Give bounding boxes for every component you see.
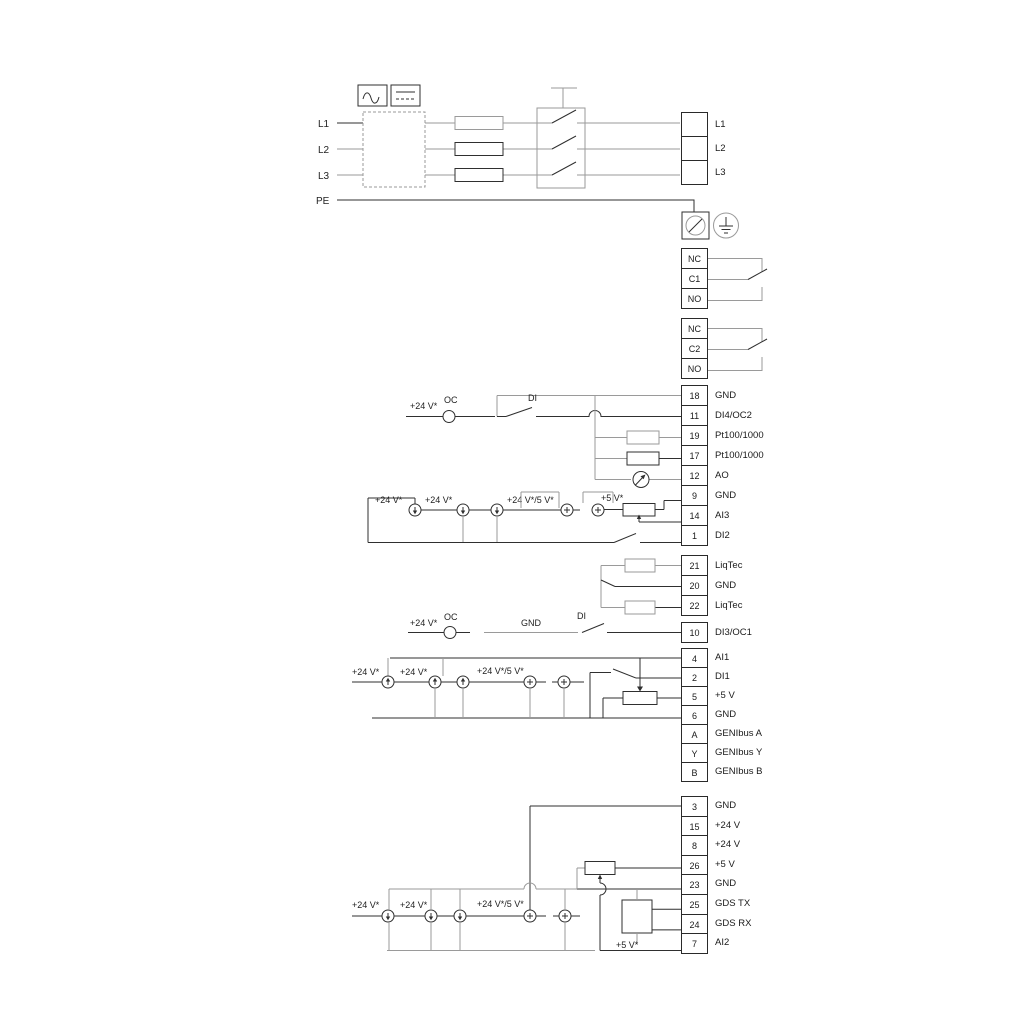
terminal-label: GENIbus B [715,762,763,782]
terminal-cell: A [681,724,708,744]
supply-circle-icon [457,504,469,516]
mains-label-pe: PE [316,196,330,207]
terminal-label: +24 V [715,816,740,837]
terminal-label: +24 V [715,835,740,856]
liqtec-circuit [601,559,681,614]
supply-circle-icon [382,910,394,922]
di3-oc1-circuit: +24 V* OC GND DI [408,611,681,639]
terminal-label: Pt100/1000 [715,425,764,446]
supply-circle-icon [524,910,536,922]
gds-sensor: +5 V* [616,889,681,950]
supply-circle-icon [429,676,441,688]
terminal-label: LiqTec [715,555,742,576]
terminal-label: GENIbus Y [715,743,762,763]
v5-label: +5 V* [601,493,624,503]
terminal-cell: 4 [681,648,708,668]
terminal-label: GND [715,385,736,406]
terminal-cell: 24 [681,914,708,935]
oc-output-icon [444,627,456,639]
terminal-cell: 7 [681,933,708,954]
supply-circle-icon [561,504,573,516]
relay-cell: C2 [681,338,708,359]
relay2-wiring [708,329,767,371]
fuse-l2 [455,143,503,156]
terminal-label: AI3 [715,505,729,526]
terminal-label: L3 [715,160,726,185]
dc-symbol-icon [391,85,420,106]
terminal-label: Pt100/1000 [715,445,764,466]
terminal-cell: 25 [681,894,708,915]
v24-label: +24 V* [400,900,428,910]
filter-box [363,112,425,187]
oc-label: OC [444,612,458,622]
fuse-l1 [455,117,503,130]
terminal-label: LiqTec [715,595,742,616]
ai2-gds-circuit: +5 V* +24 V* +24 V* +24 V*/5 V* [352,806,681,951]
v24-label: +24 V* [400,667,428,677]
terminal-cell: B [681,762,708,782]
terminal-label: +5 V [715,686,735,706]
supply-circle-icon [524,676,536,688]
wiring-diagram: L1 L2 L3 PE [0,0,1024,1024]
terminal-cell: 17 [681,445,708,466]
relay-cell: C1 [681,268,708,289]
di-label: DI [577,611,586,621]
terminal-label: AI1 [715,648,729,668]
supply-circle-icon [559,910,571,922]
supply-circle-icon [409,504,421,516]
terminal-cell [681,136,708,161]
potentiometer [585,862,615,875]
terminal-cell: 19 [681,425,708,446]
relay-cell: NO [681,288,708,309]
liqtec-sensor-1 [625,559,655,572]
relay-cell: NC [681,248,708,269]
liqtec-sensor-2 [625,601,655,614]
terminal-label: AI2 [715,933,729,954]
terminal-cell: 8 [681,835,708,856]
mains-label-l2: L2 [318,145,330,156]
terminal-label: +5 V [715,855,735,876]
oc-label: OC [444,395,458,405]
terminal-label: GND [715,874,736,895]
ai3-circuit: +24 V* +24 V* +24 V*/5 V* +5 V* [368,492,681,543]
terminal-cell: 9 [681,485,708,506]
supply-circle-icon [592,504,604,516]
oc-output-icon [443,411,455,423]
wiring-layer: L1 L2 L3 PE [0,0,1024,1024]
terminal-cell [681,112,708,137]
terminal-cell: 6 [681,705,708,725]
terminal-cell: 3 [681,796,708,817]
di4-oc2-circuit: +24 V* OC DI [406,393,681,488]
terminal-label: DI4/OC2 [715,405,752,426]
supply-circle-icon [457,676,469,688]
terminal-label: GDS TX [715,894,750,915]
terminal-label: DI1 [715,667,730,687]
supply-circle-icon [425,910,437,922]
terminal-cell: 22 [681,595,708,616]
mains-label-l1: L1 [318,119,330,130]
terminal-label: DI3/OC1 [715,622,752,643]
ac-symbol-icon [358,85,387,106]
pe-terminal [682,212,709,239]
main-switch [537,88,585,188]
ai1-circuit: +24 V* +24 V* +24 V*/5 V* [352,658,681,718]
terminal-label: AO [715,465,729,486]
terminal-cell: 2 [681,667,708,687]
terminal-cell: 5 [681,686,708,706]
terminal-cell: 21 [681,555,708,576]
terminal-cell: 18 [681,385,708,406]
terminal-label: GND [715,796,736,817]
terminal-cell: 20 [681,575,708,596]
terminal-label: GND [715,705,736,725]
supply-circle-icon [454,910,466,922]
supply-circle-icon [491,504,503,516]
mains-label-l3: L3 [318,171,330,182]
v24-label: +24 V* [375,495,403,505]
potentiometer [623,692,657,705]
ao-meter-icon [633,472,649,488]
terminal-cell: 12 [681,465,708,486]
v24-label: +24 V* [410,401,438,411]
terminal-label: GND [715,485,736,506]
v24v5-label: +24 V*/5 V* [477,899,524,909]
terminal-label: GENIbus A [715,724,762,744]
terminal-cell: 1 [681,525,708,546]
terminal-cell: Y [681,743,708,763]
relay1-wiring [708,259,767,301]
earth-icon [714,213,739,238]
terminal-label: GDS RX [715,914,751,935]
relay-cell: NC [681,318,708,339]
terminal-cell: 11 [681,405,708,426]
terminal-label: L1 [715,112,726,137]
pt100-sensor-2 [627,452,659,465]
di-label: DI [528,393,537,403]
v24v5-label: +24 V*/5 V* [507,495,554,505]
terminal-cell: 15 [681,816,708,837]
terminal-cell: 14 [681,505,708,526]
supply-circle-icon [558,676,570,688]
v24-label: +24 V* [425,495,453,505]
terminal-cell: 26 [681,855,708,876]
gnd-label: GND [521,618,542,628]
v24-label: +24 V* [352,667,380,677]
fuse-l3 [455,169,503,182]
pt100-sensor-1 [627,431,659,444]
v24v5-label: +24 V*/5 V* [477,666,524,676]
relay-cell: NO [681,358,708,379]
pe-wire [337,200,694,212]
terminal-label: GND [715,575,736,596]
supply-circle-icon [382,676,394,688]
v24-label: +24 V* [352,900,380,910]
mains-section: L1 L2 L3 PE [316,85,739,239]
terminal-label: L2 [715,136,726,161]
potentiometer [623,504,655,517]
terminal-cell [681,160,708,185]
v24-label: +24 V* [410,618,438,628]
terminal-cell: 23 [681,874,708,895]
v5-label: +5 V* [616,940,639,950]
terminal-label: DI2 [715,525,730,546]
terminal-cell: 10 [681,622,708,643]
